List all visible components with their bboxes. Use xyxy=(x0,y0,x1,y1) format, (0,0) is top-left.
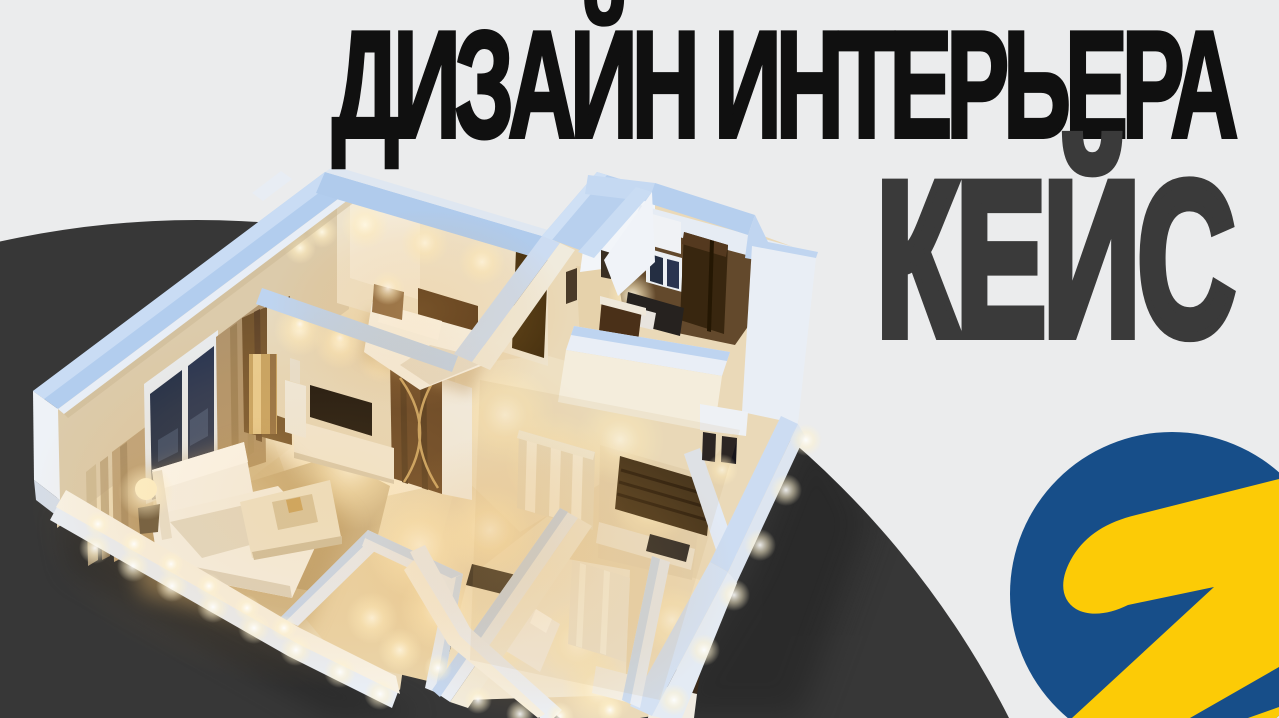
svg-text:КЕЙС: КЕЙС xyxy=(876,134,1236,382)
